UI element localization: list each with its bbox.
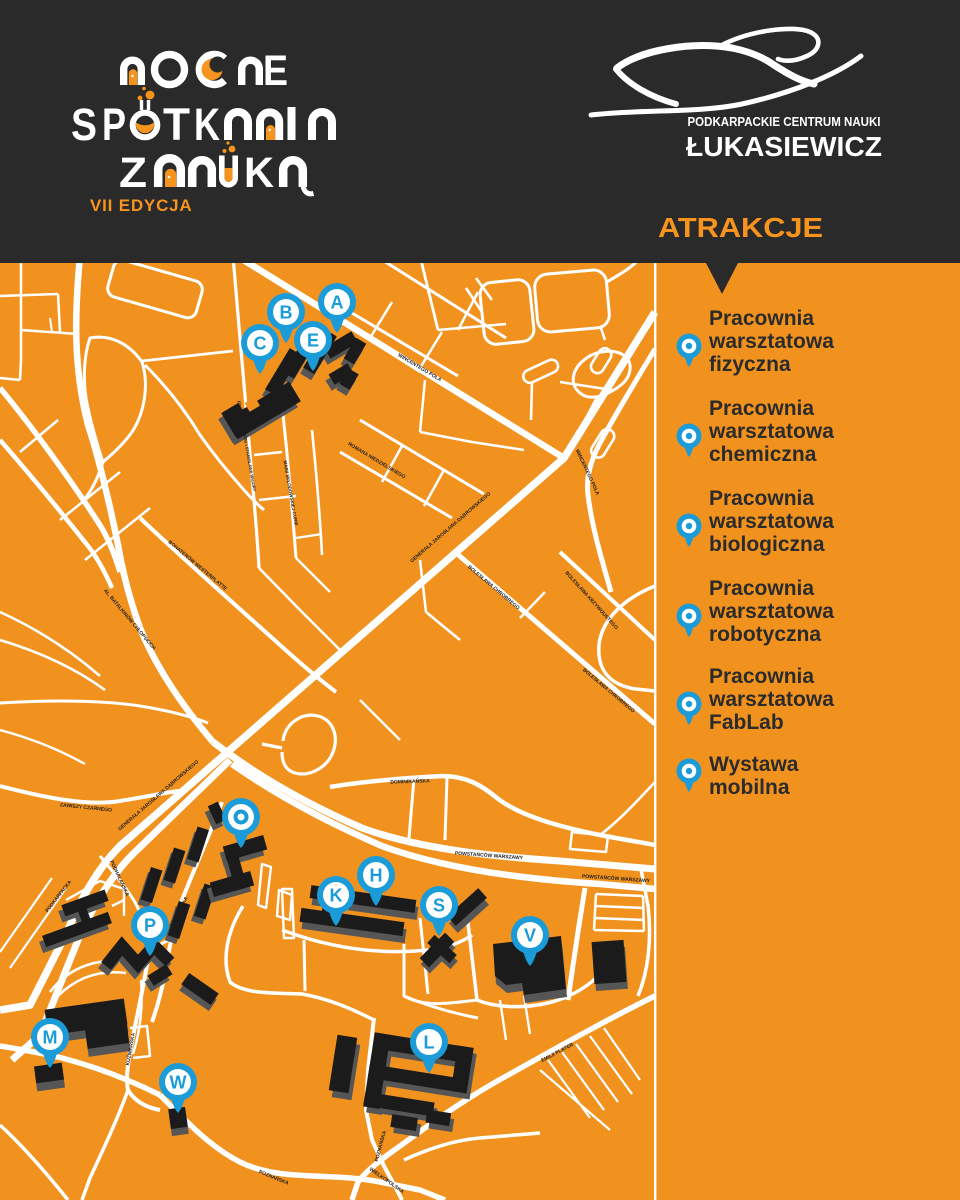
svg-text:K: K (330, 886, 343, 906)
svg-text:V: V (524, 926, 536, 946)
svg-text:M: M (43, 1028, 58, 1048)
svg-text:biologiczna: biologiczna (709, 533, 825, 556)
svg-text:P: P (144, 916, 156, 936)
svg-text:chemiczna: chemiczna (709, 443, 817, 466)
svg-text:W: W (170, 1073, 187, 1093)
svg-text:warsztatowa: warsztatowa (708, 420, 834, 443)
svg-text:C: C (254, 334, 267, 354)
svg-text:A: A (331, 293, 344, 313)
svg-text:warsztatowa: warsztatowa (708, 688, 834, 711)
svg-text:K: K (244, 149, 274, 197)
svg-text:L: L (424, 1033, 435, 1053)
svg-text:fizyczna: fizyczna (709, 353, 791, 376)
svg-text:warsztatowa: warsztatowa (708, 330, 834, 353)
svg-text:E: E (307, 331, 319, 351)
svg-text:Pracownia: Pracownia (709, 397, 814, 420)
svg-text:mobilna: mobilna (709, 776, 790, 799)
svg-text:Pracownia: Pracownia (709, 487, 814, 510)
svg-text:Pracownia: Pracownia (709, 665, 814, 688)
svg-text:T: T (163, 99, 190, 150)
svg-text:robotyczna: robotyczna (709, 623, 821, 646)
svg-text:ŁUKASIEWICZ: ŁUKASIEWICZ (686, 131, 882, 162)
svg-text:B: B (280, 303, 293, 323)
svg-text:warsztatowa: warsztatowa (708, 510, 834, 533)
svg-text:Pracownia: Pracownia (709, 307, 814, 330)
svg-text:Wystawa: Wystawa (709, 753, 799, 776)
svg-text:S: S (71, 99, 97, 150)
svg-text:PODKARPACKIE CENTRUM NAUKI: PODKARPACKIE CENTRUM NAUKI (688, 115, 881, 129)
svg-text:H: H (370, 866, 383, 886)
svg-text:E: E (263, 47, 288, 95)
svg-text:Z: Z (119, 149, 147, 197)
svg-text:S: S (433, 896, 445, 916)
svg-text:Pracownia: Pracownia (709, 577, 814, 600)
svg-text:FabLab: FabLab (709, 711, 784, 734)
svg-text:VII EDYCJA: VII EDYCJA (90, 196, 192, 215)
svg-text:warsztatowa: warsztatowa (708, 600, 834, 623)
svg-text:ATRAKCJE: ATRAKCJE (658, 212, 823, 243)
svg-text:K: K (194, 99, 220, 150)
svg-text:P: P (102, 99, 126, 150)
